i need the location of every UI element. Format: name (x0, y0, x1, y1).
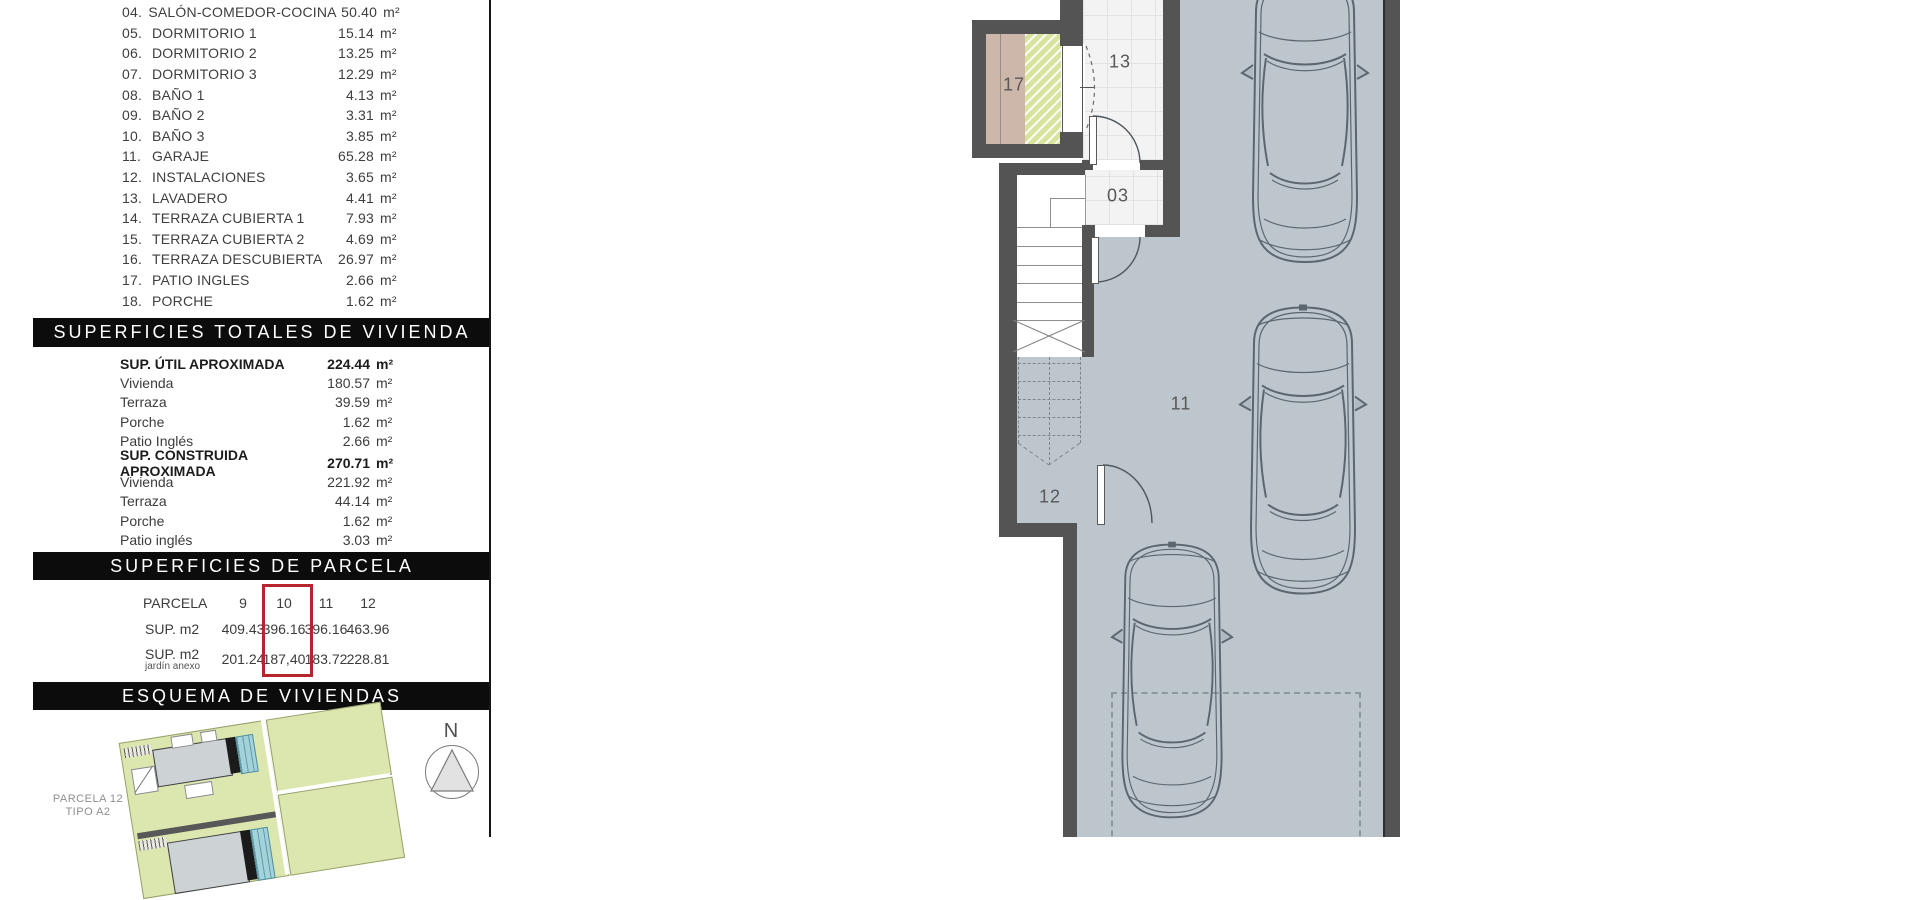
area-unit: m² (380, 25, 406, 41)
area-unit: m² (380, 87, 406, 103)
room-number: 07. (122, 66, 152, 82)
room-area: 4.41 (328, 190, 374, 206)
parcela-col-header: PARCELA (143, 595, 207, 611)
room-label-hall: 03 (1107, 186, 1129, 207)
room-area: 2.66 (328, 272, 374, 288)
area-unit: m² (383, 4, 406, 20)
room-number: 04. (122, 4, 148, 20)
room-name: BAÑO 1 (152, 87, 328, 103)
room-row: 05.DORMITORIO 115.14m² (122, 23, 406, 44)
total-label: Terraza (120, 493, 318, 509)
room-name: TERRAZA CUBIERTA 1 (152, 210, 328, 226)
room-number: 15. (122, 231, 152, 247)
room-row: 11.GARAJE65.28m² (122, 146, 406, 167)
area-unit: m² (376, 394, 400, 410)
room-number: 18. (122, 293, 152, 309)
room-number: 12. (122, 169, 152, 185)
room-number: 16. (122, 251, 152, 267)
siteplan-ramp-diagonal (131, 766, 156, 793)
area-unit: m² (376, 356, 400, 372)
area-unit: m² (380, 169, 406, 185)
north-label: N (428, 720, 474, 743)
panel-divider-line (489, 0, 491, 837)
parcela-row2-label-main: SUP. m2 (145, 646, 199, 662)
room-name: DORMITORIO 1 (152, 25, 328, 41)
room-name: GARAJE (152, 148, 328, 164)
room-row: 08.BAÑO 14.13m² (122, 84, 406, 105)
room-name: INSTALACIONES (152, 169, 328, 185)
room-row: 18.PORCHE1.62m² (122, 290, 406, 311)
room-number: 10. (122, 128, 152, 144)
room-name: LAVADERO (152, 190, 328, 206)
area-unit: m² (380, 128, 406, 144)
parcela-sup-value: 463.96 (343, 621, 393, 637)
sup-util-value: 224.44 (318, 356, 370, 372)
room-area: 3.65 (328, 169, 374, 185)
total-label: Patio inglés (120, 532, 318, 548)
room-name: DORMITORIO 3 (152, 66, 328, 82)
room-area: 1.62 (328, 293, 374, 309)
room-area: 3.31 (328, 107, 374, 123)
room-label-garaje: 11 (1171, 394, 1192, 415)
room-number: 08. (122, 87, 152, 103)
area-unit: m² (376, 493, 400, 509)
north-triangle (426, 746, 478, 798)
room-row: 06.DORMITORIO 213.25m² (122, 43, 406, 64)
room-area: 4.69 (328, 231, 374, 247)
room-area-list: 04.SALÓN-COMEDOR-COCINA50.40m² 05.DORMIT… (122, 2, 406, 311)
room-name: BAÑO 3 (152, 128, 328, 144)
total-label: Vivienda (120, 375, 318, 391)
room-number: 13. (122, 190, 152, 206)
area-unit: m² (380, 293, 406, 309)
area-unit: m² (376, 513, 400, 529)
door-leaf (1091, 237, 1099, 284)
total-value: 1.62 (318, 414, 370, 430)
room-name: PATIO INGLES (152, 272, 328, 288)
area-unit: m² (380, 107, 406, 123)
room-label-patio: 17 (1003, 75, 1025, 96)
sup-construida-block: SUP. CONSTRUIDA APROXIMADA270.71m² Vivie… (120, 453, 400, 549)
room-name: SALÓN-COMEDOR-COCINA (148, 4, 336, 20)
area-unit: m² (376, 414, 400, 430)
section-header-superficies-totales: SUPERFICIES TOTALES DE VIVIENDA (33, 318, 491, 347)
area-unit: m² (380, 148, 406, 164)
car-icon (1238, 298, 1368, 601)
total-label: Porche (120, 414, 318, 430)
room-area: 15.14 (328, 25, 374, 41)
total-value: 221.92 (318, 474, 370, 490)
room-number: 06. (122, 45, 152, 61)
room-name: TERRAZA DESCUBIERTA (152, 251, 328, 267)
sup-construida-header-row: SUP. CONSTRUIDA APROXIMADA270.71m² (120, 453, 400, 472)
parcela-row2-label: SUP. m2jardín anexo (145, 646, 200, 672)
room-area: 13.25 (328, 45, 374, 61)
room-area: 12.29 (328, 66, 374, 82)
total-row: Terraza39.59m² (120, 393, 400, 412)
room-number: 09. (122, 107, 152, 123)
room-row: 12.INSTALACIONES3.65m² (122, 167, 406, 188)
area-unit: m² (376, 532, 400, 548)
area-unit: m² (380, 66, 406, 82)
esquema-caption: PARCELA 12 TIPO A2 (36, 793, 140, 819)
room-area: 7.93 (328, 210, 374, 226)
total-row: Vivienda180.57m² (120, 373, 400, 392)
parcela-jardin-value: 228.81 (343, 651, 393, 667)
area-unit: m² (376, 474, 400, 490)
area-unit: m² (380, 251, 406, 267)
area-unit: m² (380, 190, 406, 206)
parcela-row1-label: SUP. m2 (145, 621, 199, 637)
room-area: 65.28 (328, 148, 374, 164)
room-row: 15.TERRAZA CUBIERTA 24.69m² (122, 229, 406, 250)
site-plan-thumbnail (111, 688, 406, 898)
room-label-lavadero: 13 (1109, 52, 1131, 73)
door-leaf (1089, 116, 1097, 165)
car-icon (1240, 0, 1370, 268)
section-header-superficies-parcela: SUPERFICIES DE PARCELA (33, 552, 491, 580)
area-unit: m² (380, 272, 406, 288)
total-value: 180.57 (318, 375, 370, 391)
parcela-row2-sublabel: jardín anexo (145, 662, 200, 672)
room-row: 04.SALÓN-COMEDOR-COCINA50.40m² (122, 2, 406, 23)
sup-construida-value: 270.71 (318, 455, 370, 471)
room-row: 10.BAÑO 33.85m² (122, 126, 406, 147)
area-unit: m² (376, 433, 400, 449)
total-label: Vivienda (120, 474, 318, 490)
total-value: 2.66 (318, 433, 370, 449)
car-icon (1110, 530, 1234, 830)
area-unit: m² (380, 231, 406, 247)
esquema-caption-line1: PARCELA 12 (36, 793, 140, 806)
room-name: TERRAZA CUBIERTA 2 (152, 231, 328, 247)
room-number: 14. (122, 210, 152, 226)
room-number: 05. (122, 25, 152, 41)
area-unit: m² (380, 210, 406, 226)
area-unit: m² (376, 375, 400, 391)
room-row: 09.BAÑO 23.31m² (122, 105, 406, 126)
room-row: 13.LAVADERO4.41m² (122, 187, 406, 208)
total-value: 3.03 (318, 532, 370, 548)
parcela-number: 12 (343, 595, 393, 611)
room-area: 4.13 (328, 87, 374, 103)
total-value: 44.14 (318, 493, 370, 509)
room-row: 16.TERRAZA DESCUBIERTA26.97m² (122, 249, 406, 270)
north-arrow-icon (425, 745, 479, 799)
sup-util-block: SUP. ÚTIL APROXIMADA224.44m² Vivienda180… (120, 354, 400, 450)
total-value: 39.59 (318, 394, 370, 410)
area-unit: m² (380, 45, 406, 61)
sup-util-label: SUP. ÚTIL APROXIMADA (120, 356, 318, 372)
siteplan-building-2 (167, 831, 250, 894)
total-label: Terraza (120, 394, 318, 410)
room-number: 11. (122, 148, 152, 164)
total-label: Porche (120, 513, 318, 529)
room-row: 17.PATIO INGLES2.66m² (122, 270, 406, 291)
total-value: 1.62 (318, 513, 370, 529)
room-number: 17. (122, 272, 152, 288)
room-name: PORCHE (152, 293, 328, 309)
room-area: 26.97 (328, 251, 374, 267)
room-row: 07.DORMITORIO 312.29m² (122, 64, 406, 85)
total-row: Terraza44.14m² (120, 492, 400, 511)
room-area: 3.85 (328, 128, 374, 144)
total-row: Vivienda221.92m² (120, 472, 400, 491)
room-row: 14.TERRAZA CUBIERTA 17.93m² (122, 208, 406, 229)
total-row: Patio inglés3.03m² (120, 530, 400, 549)
room-name: BAÑO 2 (152, 107, 328, 123)
total-row: Porche1.62m² (120, 511, 400, 530)
room-name: DORMITORIO 2 (152, 45, 328, 61)
room-area: 50.40 (337, 4, 377, 20)
room-label-instalaciones: 12 (1039, 487, 1061, 508)
door-leaf (1097, 465, 1105, 525)
total-row: Porche1.62m² (120, 412, 400, 431)
area-unit: m² (376, 455, 400, 471)
sup-util-header-row: SUP. ÚTIL APROXIMADA224.44m² (120, 354, 400, 373)
esquema-caption-line2: TIPO A2 (36, 806, 140, 819)
highlighted-parcela-box (262, 584, 313, 677)
floor-plan: 17 13 03 11 12 (960, 0, 1410, 837)
